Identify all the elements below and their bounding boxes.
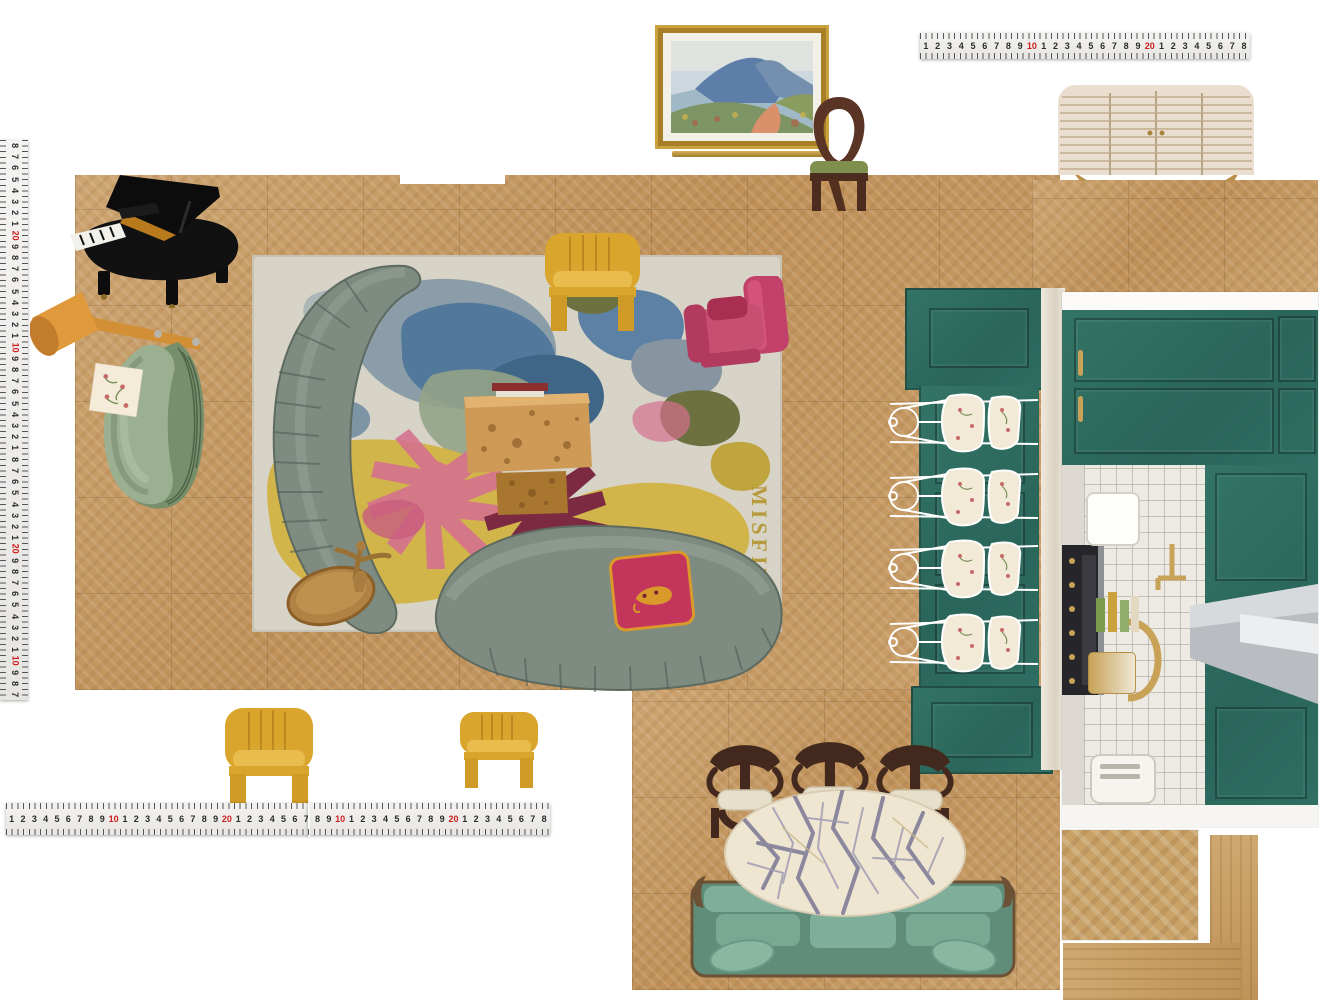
ruler-number: 1 <box>119 815 130 824</box>
ruler-number: 4 <box>8 614 19 619</box>
ruler-number: 9 <box>210 815 221 824</box>
bronze-side-table[interactable] <box>283 538 393 633</box>
ruler-number: 8 <box>538 815 549 824</box>
ruler-number: 3 <box>142 815 153 824</box>
kitchen-range-hood <box>1180 584 1318 704</box>
ruler-number: 5 <box>8 490 19 495</box>
brass-pot-filler <box>1154 544 1190 594</box>
ruler-number: 4 <box>8 188 19 193</box>
ruler-number: 7 <box>8 378 19 383</box>
steel-ruler-bottom[interactable]: 1234567891012345678920123456789101234567… <box>6 803 550 835</box>
ruler-number: 6 <box>402 815 413 824</box>
ruler-number: 7 <box>1226 42 1238 51</box>
ruler-number: 4 <box>153 815 164 824</box>
ruler-number: 2 <box>470 815 481 824</box>
ruler-number: 4 <box>1073 42 1085 51</box>
ruler-number: 4 <box>493 815 504 824</box>
ruler-number: 6 <box>1097 42 1109 51</box>
ruler-seam <box>308 801 310 837</box>
ruler-number: 7 <box>8 468 19 473</box>
loop-back-chair-graphic <box>798 95 880 213</box>
red-book <box>492 383 548 391</box>
ruler-number: 20 <box>8 230 19 240</box>
leopard-pillow[interactable] <box>606 548 698 634</box>
ruler-number: 10 <box>8 656 19 666</box>
ruler-number: 6 <box>1215 42 1227 51</box>
bronze-side-table-graphic <box>283 538 393 633</box>
ruler-number: 2 <box>8 636 19 641</box>
fabric-swatch[interactable] <box>89 363 143 417</box>
ruler-number: 4 <box>380 815 391 824</box>
floor-notch <box>400 175 505 184</box>
ruler-number: 6 <box>8 278 19 283</box>
ruler-number: 3 <box>8 513 19 518</box>
ruler-number: 20 <box>448 815 459 824</box>
ruler-number: 1 <box>233 815 244 824</box>
ruler-number: 5 <box>8 401 19 406</box>
ruler-number: 7 <box>527 815 538 824</box>
ruler-number: 4 <box>8 502 19 507</box>
ruler-number: 10 <box>335 815 346 824</box>
ruler-number: 1 <box>346 815 357 824</box>
yellow-tub-chair-on-rug[interactable] <box>545 233 640 331</box>
striped-sideboard[interactable] <box>1058 85 1254 181</box>
banquette-crown <box>905 288 1054 390</box>
moodboard-canvas: MISFIT JOIE <box>0 0 1334 1000</box>
ruler-number: 8 <box>1002 42 1014 51</box>
ruler-number: 7 <box>8 266 19 271</box>
ruler-number: 2 <box>357 815 368 824</box>
ruler-number: 20 <box>221 815 232 824</box>
ruler-number: 5 <box>1203 42 1215 51</box>
brass-handle <box>1078 396 1083 422</box>
steel-ruler-top[interactable]: 123456789101234567892012345678 <box>920 33 1250 59</box>
ruler-number: 7 <box>8 154 19 159</box>
ruler-number: 6 <box>8 479 19 484</box>
ruler-number: 9 <box>8 356 19 361</box>
wire-chair-graphic <box>888 606 1040 678</box>
wire-dining-chair[interactable] <box>888 606 1040 678</box>
ruler-number: 5 <box>51 815 62 824</box>
ruler-number: 3 <box>255 815 266 824</box>
ruler-number: 5 <box>8 289 19 294</box>
ruler-number: 8 <box>8 681 19 686</box>
wire-chair-graphic <box>888 460 1040 532</box>
kitchen-countertop-strip <box>1062 292 1318 311</box>
ruler-number: 9 <box>1132 42 1144 51</box>
ruler-number: 8 <box>8 569 19 574</box>
ruler-number: 5 <box>1085 42 1097 51</box>
ruler-number: 4 <box>1191 42 1203 51</box>
ruler-number: 4 <box>40 815 51 824</box>
ruler-number: 9 <box>8 558 19 563</box>
ruler-number: 9 <box>323 815 334 824</box>
marble-oval-table[interactable] <box>723 788 967 918</box>
ruler-number: 1 <box>6 815 17 824</box>
ruler-number: 6 <box>176 815 187 824</box>
ruler-number: 8 <box>8 367 19 372</box>
burl-coffee-table-graphic <box>462 383 594 515</box>
plank-swatch-horizontal[interactable] <box>1063 943 1241 1000</box>
ruler-number: 1 <box>459 815 470 824</box>
wire-dining-chair[interactable] <box>888 532 1040 604</box>
ruler-number: 4 <box>8 412 19 417</box>
ruler-number: 9 <box>436 815 447 824</box>
leopard-pillow-graphic <box>606 548 698 634</box>
painting-artwork <box>671 41 813 133</box>
ruler-number: 6 <box>8 166 19 171</box>
ruler-number: 8 <box>1120 42 1132 51</box>
ruler-number: 7 <box>414 815 425 824</box>
ruler-number: 10 <box>1026 42 1038 51</box>
gold-appliance <box>1088 652 1136 694</box>
wire-dining-chair[interactable] <box>888 386 1040 458</box>
fringe-armchair-graphic <box>82 332 208 516</box>
curved-sofa-bottom-graphic <box>420 498 792 696</box>
ruler-number: 9 <box>8 670 19 675</box>
marble-table-graphic <box>723 788 967 918</box>
ruler-number: 3 <box>1179 42 1191 51</box>
grand-piano[interactable] <box>68 173 253 308</box>
wire-chair-graphic <box>888 532 1040 604</box>
ruler-number: 2 <box>8 524 19 529</box>
ruler-number: 2 <box>131 815 142 824</box>
brass-handle <box>1078 350 1083 376</box>
ruler-number: 2 <box>8 322 19 327</box>
ruler-number: 8 <box>8 143 19 148</box>
ruler-number: 6 <box>63 815 74 824</box>
ruler-number: 2 <box>1050 42 1062 51</box>
ruler-number: 3 <box>482 815 493 824</box>
fabric-swatch-graphic <box>89 363 143 417</box>
grand-piano-graphic <box>68 173 253 308</box>
ruler-number: 6 <box>979 42 991 51</box>
ruler-number: 8 <box>85 815 96 824</box>
ruler-number: 7 <box>8 692 19 697</box>
ruler-number: 4 <box>8 300 19 305</box>
ruler-number: 4 <box>267 815 278 824</box>
striped-sideboard-graphic <box>1058 85 1254 181</box>
ruler-number: 5 <box>391 815 402 824</box>
ruler-number: 5 <box>8 602 19 607</box>
ruler-number: 3 <box>8 311 19 316</box>
ruler-number: 3 <box>29 815 40 824</box>
ruler-number: 5 <box>504 815 515 824</box>
ruler-number: 1 <box>1156 42 1168 51</box>
ruler-number: 1 <box>8 647 19 652</box>
curved-sofa-bottom[interactable] <box>420 498 792 696</box>
ruler-number: 8 <box>312 815 323 824</box>
ruler-number: 2 <box>17 815 28 824</box>
ruler-number: 9 <box>1014 42 1026 51</box>
ruler-number: 7 <box>74 815 85 824</box>
extraction-fan <box>1086 492 1140 546</box>
ruler-number: 8 <box>425 815 436 824</box>
ruler-number: 1 <box>8 535 19 540</box>
wire-chair-graphic <box>888 386 1040 458</box>
pink-armchair-graphic <box>683 276 795 372</box>
bottles <box>1096 592 1140 632</box>
folding-ruler-left[interactable]: 8765432120987654321109876543218765432120… <box>0 140 28 700</box>
ruler-number: 1 <box>8 446 19 451</box>
burl-coffee-table[interactable] <box>462 383 594 515</box>
ruler-number: 8 <box>199 815 210 824</box>
pink-armchair[interactable] <box>683 276 795 372</box>
ruler-number: 3 <box>1061 42 1073 51</box>
ruler-number: 2 <box>8 210 19 215</box>
ruler-number: 20 <box>1144 42 1156 51</box>
ruler-number: 8 <box>8 255 19 260</box>
ruler-number: 10 <box>8 342 19 352</box>
ruler-number: 5 <box>967 42 979 51</box>
ruler-number: 7 <box>8 580 19 585</box>
fringe-armchair[interactable] <box>82 332 208 516</box>
ruler-number: 2 <box>932 42 944 51</box>
ruler-number: 1 <box>8 222 19 227</box>
ruler-number: 7 <box>301 815 312 824</box>
kitchen-upper-cabinets <box>1062 310 1318 465</box>
ruler-number: 7 <box>1109 42 1121 51</box>
ruler-number: 8 <box>8 457 19 462</box>
kitchen-elevation[interactable] <box>1062 292 1318 827</box>
loop-back-chair[interactable] <box>798 95 880 213</box>
ruler-number: 6 <box>8 390 19 395</box>
yellow-chair-graphic <box>460 712 538 788</box>
ruler-number: 10 <box>108 815 119 824</box>
herringbone-swatch[interactable] <box>1062 830 1198 940</box>
ruler-number: 2 <box>244 815 255 824</box>
ruler-number: 8 <box>1238 42 1250 51</box>
ruler-number: 6 <box>8 591 19 596</box>
ruler-number: 7 <box>991 42 1003 51</box>
ruler-number: 4 <box>955 42 967 51</box>
ruler-number: 9 <box>8 244 19 249</box>
toaster <box>1090 754 1156 804</box>
ruler-number: 3 <box>8 199 19 204</box>
ruler-number: 7 <box>187 815 198 824</box>
ruler-number: 3 <box>944 42 956 51</box>
kitchen-bottom-strip <box>1062 805 1318 827</box>
ruler-number: 1 <box>1038 42 1050 51</box>
floor-top-right-strip[interactable] <box>1032 180 1318 295</box>
yellow-tub-chair-small[interactable] <box>460 712 538 788</box>
ruler-number: 9 <box>97 815 108 824</box>
white-book <box>496 391 544 397</box>
ruler-number: 2 <box>8 434 19 439</box>
ruler-number: 3 <box>369 815 380 824</box>
ruler-number: 1 <box>8 334 19 339</box>
ruler-number: 2 <box>1167 42 1179 51</box>
ruler-number: 1 <box>920 42 932 51</box>
ruler-number: 6 <box>516 815 527 824</box>
ruler-number: 5 <box>278 815 289 824</box>
ruler-number: 5 <box>8 177 19 182</box>
wire-dining-chair[interactable] <box>888 460 1040 532</box>
ruler-number: 3 <box>8 423 19 428</box>
ruler-number: 20 <box>8 544 19 554</box>
yellow-chair-graphic <box>545 233 640 331</box>
ruler-number: 6 <box>289 815 300 824</box>
ruler-number: 3 <box>8 625 19 630</box>
ruler-number: 5 <box>165 815 176 824</box>
